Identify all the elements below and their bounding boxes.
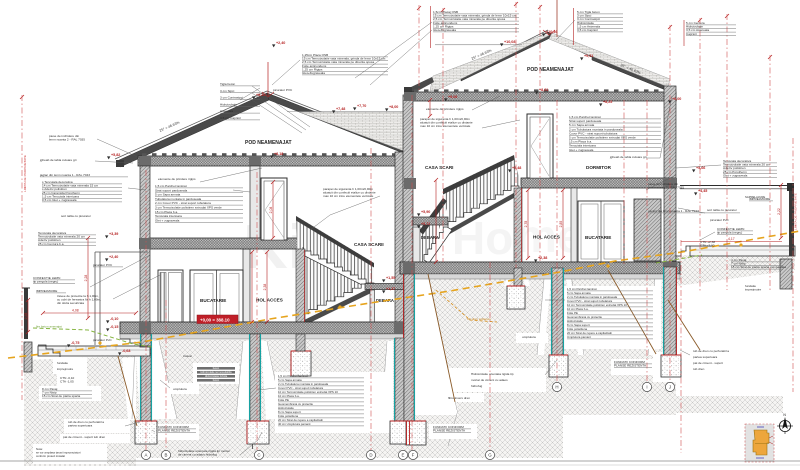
svg-text:+7,48: +7,48	[336, 107, 345, 111]
svg-text:15 cm Strat de piatra sparta: 15 cm Strat de piatra sparta	[42, 394, 80, 398]
svg-text:tip pergola (negru): tip pergola (negru)	[33, 280, 58, 284]
svg-text:elemente de prindere rigips: elemente de prindere rigips	[158, 177, 196, 181]
svg-text:elemente de prindere rigips: elemente de prindere rigips	[426, 107, 464, 111]
svg-text:POD NEAMENAJAT: POD NEAMENAJAT	[527, 67, 574, 73]
svg-text:IMPREJMUIRE: IMPREJMUIRE	[36, 289, 57, 293]
svg-text:PLANSE REZISTENTA: PLANSE REZISTENTA	[158, 429, 191, 433]
svg-text:din sticla securizata: din sticla securizata	[57, 301, 84, 305]
svg-text:usciori din lemn nuanta 1 - RA: usciori din lemn nuanta 1 - RAL 7043	[648, 209, 699, 213]
svg-text:-0,10: -0,10	[110, 317, 118, 321]
svg-text:imprejmuire: imprejmuire	[57, 367, 73, 371]
svg-text:umplutura: umplutura	[522, 335, 536, 339]
svg-text:CTA +2,30: CTA +2,30	[700, 244, 715, 248]
svg-text:3 cm Contrasipci: 3 cm Contrasipci	[220, 96, 243, 100]
svg-text:tub dren subteran: tub dren subteran	[467, 317, 491, 321]
svg-text:2,85: 2,85	[559, 221, 563, 228]
svg-text:Hidroizolatie lichida: Hidroizolatie lichida	[205, 374, 228, 378]
svg-text:-0,75: -0,75	[71, 341, 79, 345]
svg-text:+8,00: +8,00	[389, 105, 398, 109]
svg-text:max 10 cm intre elementele ver: max 10 cm intre elementele verticale	[420, 124, 471, 128]
svg-text:HOL ACCES: HOL ACCES	[533, 235, 560, 240]
svg-text:+10,08: +10,08	[504, 40, 515, 44]
svg-text:picurator PvC: picurator PvC	[93, 338, 113, 342]
svg-text:fire beton amenajat: fire beton amenajat	[36, 325, 62, 329]
svg-text:C: C	[257, 453, 260, 458]
svg-text:mortar de ciment cu adaos: mortar de ciment cu adaos	[471, 378, 508, 382]
svg-text:2,28: 2,28	[84, 275, 88, 282]
svg-text:filtru invers dren: filtru invers dren	[448, 396, 470, 400]
svg-text:PLANSE REZISTENTA: PLANSE REZISTENTA	[433, 429, 466, 433]
svg-text:-0,68: -0,68	[122, 349, 130, 353]
svg-text:+2,40: +2,40	[276, 41, 285, 45]
svg-text:3,5 cm Capriori: 3,5 cm Capriori	[577, 28, 598, 32]
svg-text:2,38: 2,38	[263, 284, 267, 291]
svg-text:F: F	[412, 453, 415, 458]
svg-text:Hidroizolatie orientata rigida: Hidroizolatie orientata rigida tip	[471, 372, 514, 376]
svg-text:sort tabla cu picurator: sort tabla cu picurator	[61, 214, 91, 218]
svg-text:BUCATARIE: BUCATARIE	[200, 298, 226, 303]
svg-text:tub dren: tub dren	[693, 367, 705, 371]
svg-text:H: H	[555, 385, 558, 390]
svg-text:HOL ACCES: HOL ACCES	[256, 298, 283, 303]
svg-text:0,5 cm Glet + zugraveala: 0,5 cm Glet + zugraveala	[42, 198, 77, 202]
svg-text:+3,39: +3,39	[109, 232, 118, 236]
svg-text:B: B	[165, 453, 168, 458]
svg-text:beton: beton	[213, 366, 220, 370]
svg-text:BUCATARIE: BUCATARIE	[585, 235, 611, 240]
svg-text:+8,00: +8,00	[672, 97, 681, 101]
svg-text:3,5 cm Capriori: 3,5 cm Capriori	[220, 116, 241, 120]
svg-text:LIMITA DE PROPRIETATE: LIMITA DE PROPRIETATE	[23, 155, 27, 192]
svg-text:sort tabla cu picurator: sort tabla cu picurator	[707, 208, 737, 212]
svg-text:jgheab de tabla culoare gri: jgheab de tabla culoare gri	[39, 158, 77, 162]
svg-text:25 cm Centura b.a.: 25 cm Centura b.a.	[38, 242, 64, 246]
svg-text:Glet + zugraveala: Glet + zugraveala	[155, 218, 180, 222]
svg-text:+8,91: +8,91	[539, 88, 548, 92]
svg-text:+10,36: +10,36	[546, 30, 557, 34]
svg-text:+8,25: +8,25	[603, 100, 612, 104]
svg-text:A: A	[145, 453, 148, 458]
svg-text:Hidroizolatie termosudabila: Hidroizolatie termosudabila	[200, 370, 232, 374]
svg-text:+5,82: +5,82	[111, 153, 120, 157]
svg-text:-0,15: -0,15	[110, 325, 118, 329]
svg-text:partea superioara: partea superioara	[68, 424, 93, 428]
svg-text:Astereala: Astereala	[220, 109, 233, 113]
svg-text:Hidroizolatie: Hidroizolatie	[220, 102, 237, 106]
svg-text:CASA SCARI: CASA SCARI	[425, 165, 453, 170]
svg-text:2,28: 2,28	[24, 313, 28, 320]
svg-text:Capriori: Capriori	[686, 32, 697, 36]
svg-text:hidrofug: hidrofug	[471, 384, 482, 388]
svg-text:umplutura: umplutura	[173, 387, 187, 391]
svg-text:2,08: 2,08	[269, 207, 273, 214]
svg-text:E: E	[402, 453, 405, 458]
svg-text:lemn nuanta 2 - RAL 7035: lemn nuanta 2 - RAL 7035	[49, 138, 85, 142]
svg-text:+7,70: +7,70	[357, 104, 366, 108]
svg-text:+1,37: +1,37	[386, 287, 395, 291]
svg-text:D: D	[369, 453, 372, 458]
svg-text:tip pergola (negru): tip pergola (negru)	[717, 231, 742, 235]
svg-text:+8,33: +8,33	[256, 93, 265, 97]
svg-text:G: G	[488, 453, 492, 458]
svg-text:Glet + zugraveala: Glet + zugraveala	[723, 173, 748, 177]
svg-text:PLANSE REZISTENTA: PLANSE REZISTENTA	[614, 364, 647, 368]
svg-text:+0,00 = 388.10: +0,00 = 388.10	[200, 318, 230, 323]
svg-text:SAPRELAJURE: SAPRELAJURE	[745, 195, 765, 199]
svg-text:3 cm Sipci: 3 cm Sipci	[220, 89, 235, 93]
svg-text:I: I	[646, 385, 647, 390]
svg-text:+9,08: +9,08	[448, 95, 457, 99]
svg-text:tub de dren cu perforatii la: tub de dren cu perforatii la	[693, 349, 729, 353]
svg-text:pat de ciment - suport: pat de ciment - suport	[693, 361, 723, 365]
svg-text:+2,38: +2,38	[538, 256, 547, 260]
svg-text:picurator PVC: picurator PVC	[93, 263, 113, 267]
svg-text:+5,90: +5,90	[421, 210, 430, 214]
svg-text:DORMITOR: DORMITOR	[586, 165, 612, 170]
svg-text:jaglac din lemn nuanta 1 - RAL: jaglac din lemn nuanta 1 - RAL 7043	[39, 173, 90, 177]
svg-text:+5,72: +5,72	[421, 222, 430, 226]
svg-text:Tigla beton: Tigla beton	[220, 82, 235, 86]
svg-text:Glet+Zugraveala: Glet+Zugraveala	[433, 28, 456, 32]
svg-text:CASA SCARII: CASA SCARII	[354, 242, 384, 247]
svg-text:+4,45: +4,45	[698, 189, 707, 193]
svg-text:pat de ciment - suport tub dre: pat de ciment - suport tub dren	[63, 435, 105, 439]
svg-text:jgheab de tabla culoare gri: jgheab de tabla culoare gri	[609, 155, 647, 159]
svg-text:partea superioara: partea superioara	[693, 355, 718, 359]
svg-text:de ciment cu adaos hidrofug: de ciment cu adaos hidrofug	[178, 453, 217, 457]
svg-text:picurator PvC: picurator PvC	[710, 218, 730, 222]
svg-text:POD NEAMENAJAT: POD NEAMENAJAT	[245, 140, 292, 146]
svg-text:imprejmuire: imprejmuire	[745, 288, 761, 292]
svg-text:+8,18: +8,18	[274, 152, 283, 156]
svg-text:2,78: 2,78	[524, 221, 528, 228]
svg-text:LIMITA DE PROPRIETATE: LIMITA DE PROPRIETATE	[794, 193, 798, 230]
svg-text:beton: beton	[213, 378, 220, 382]
svg-text:CTA -1,05: CTA -1,05	[60, 380, 74, 384]
svg-text:max 10 cm intre elementele ver: max 10 cm intre elementele verticale	[323, 194, 374, 198]
svg-text:4,17: 4,17	[728, 237, 735, 241]
svg-text:4,08: 4,08	[72, 309, 79, 313]
svg-text:+1,55: +1,55	[386, 276, 395, 280]
svg-text:J: J	[669, 385, 671, 390]
svg-text:trotuar: trotuar	[183, 354, 192, 358]
svg-text:Glet+Zugraveala: Glet+Zugraveala	[302, 71, 325, 75]
svg-text:Umplutura pamant: Umplutura pamant	[567, 335, 591, 339]
svg-text:+5,48: +5,48	[512, 166, 521, 170]
svg-text:2,22: 2,22	[777, 208, 781, 215]
svg-text:+9,51: +9,51	[584, 54, 593, 58]
svg-text:picurator PVC: picurator PVC	[273, 88, 293, 92]
svg-text:fundatie: fundatie	[57, 361, 68, 365]
svg-text:conform proiect instalat: conform proiect instalat	[36, 454, 65, 458]
svg-text:Glet + zugraveala: Glet + zugraveala	[569, 148, 594, 152]
svg-text:15 cm Strat de piatra sparta c: 15 cm Strat de piatra sparta compactata	[731, 265, 786, 269]
svg-text:40 cm Umplutura pamant: 40 cm Umplutura pamant	[278, 422, 311, 426]
svg-text:+2,40: +2,40	[109, 255, 118, 259]
